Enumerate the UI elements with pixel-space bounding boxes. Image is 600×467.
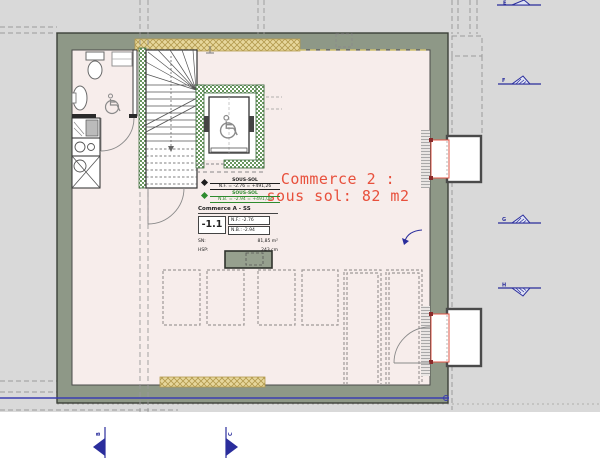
floorplan-canvas: E F G H B C Commerce 2 : sous sol: 82 m2… (0, 0, 600, 467)
level-benchmarks: SOUS-SOL N.F. = -2.76 = +491,26 SOUS-SOL… (202, 178, 292, 204)
section-label: H (502, 283, 506, 289)
section-label: G (502, 217, 506, 223)
appliance-icon (86, 120, 98, 136)
toilet-icon (88, 61, 102, 79)
section-marker-b: B (93, 427, 105, 458)
hsp-label: HSP: (198, 248, 208, 254)
elevator-door-jamb (249, 116, 254, 132)
sink-icon (72, 93, 76, 103)
section-label: E (503, 1, 507, 7)
bathroom-wall (129, 114, 137, 118)
section-marker-c: C (226, 427, 238, 458)
floorplan-drawing: E F G H B C (0, 0, 600, 467)
section-label: F (502, 78, 505, 84)
area-info-box: Commerce A - SS -1.1 N.F.: -2.76 N.B.: -… (198, 206, 278, 254)
level-number: -1.1 (198, 216, 226, 234)
section-label: C (228, 432, 234, 436)
benchmark-value: N.F. = -2.76 = +491,26 (210, 184, 280, 190)
window-well-lower (429, 309, 481, 366)
sn-value: 81,85 m² (257, 239, 278, 245)
kitchen-counter (72, 118, 100, 188)
bathroom-wall (72, 114, 96, 118)
hsp-value: 243 cm (261, 248, 278, 254)
insulation-strip-bottom (160, 377, 265, 387)
level-benchmark-icon (201, 179, 208, 186)
info-nf: N.F.: -2.76 (228, 216, 270, 225)
sn-label: SN: (198, 239, 206, 245)
benchmark-nb: SOUS-SOL N.B. = -2.94 = +491,08 (202, 191, 292, 203)
stair-wall-hatched (139, 48, 146, 188)
benchmark-value: N.B. = -2.94 = +491,08 (210, 197, 280, 203)
wall-finish-hatch (421, 306, 430, 376)
elevator-door-jamb (204, 116, 209, 132)
benchmark-nf: SOUS-SOL N.F. = -2.76 = +491,26 (202, 178, 292, 190)
window-well-upper (429, 136, 481, 182)
info-box-title: Commerce A - SS (198, 206, 278, 214)
section-label: B (96, 432, 102, 436)
insulation-strip-top (135, 39, 300, 51)
toilet-icon (86, 52, 104, 60)
wall-finish-hatch (421, 130, 430, 188)
level-benchmark-icon (201, 192, 208, 199)
info-nb: N.B.: -2.94 (228, 226, 270, 235)
bathroom-wall (133, 50, 137, 116)
